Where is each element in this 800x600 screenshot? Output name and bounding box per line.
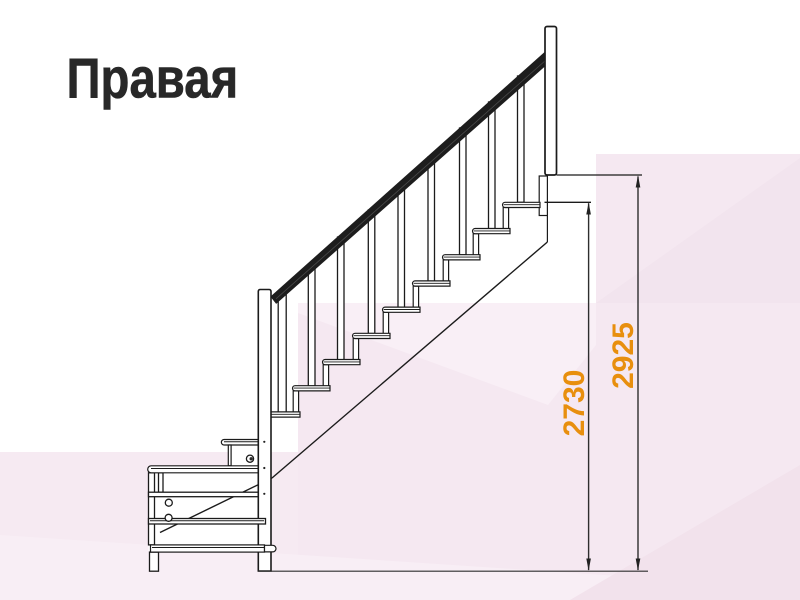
svg-text:Правая: Правая [67, 47, 239, 110]
svg-text:2925: 2925 [607, 322, 640, 389]
svg-text:2730: 2730 [558, 370, 591, 437]
